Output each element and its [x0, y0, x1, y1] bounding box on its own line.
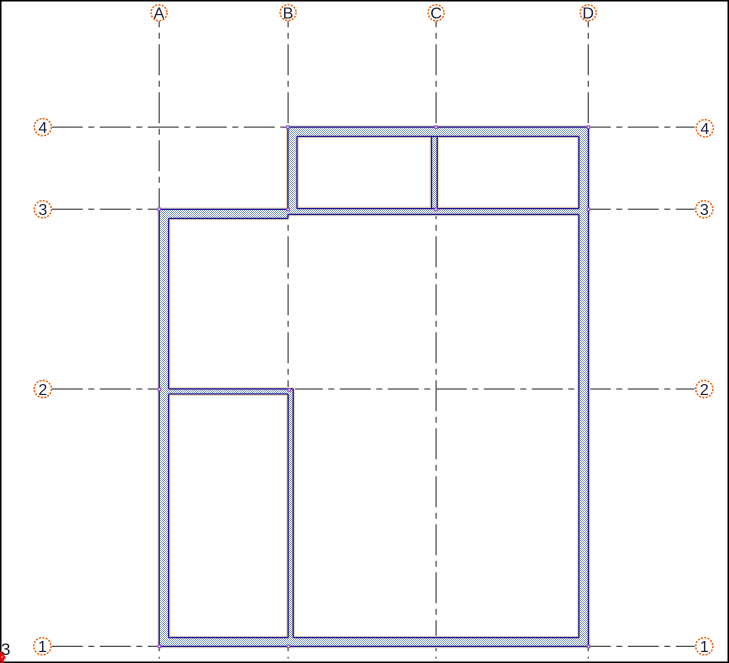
svg-text:A: A [154, 6, 165, 23]
svg-text:C: C [430, 6, 442, 23]
svg-text:3: 3 [38, 202, 47, 219]
svg-text:2: 2 [700, 382, 709, 399]
svg-text:1: 1 [38, 639, 47, 656]
svg-text:B: B [283, 5, 294, 22]
svg-text:1: 1 [700, 639, 709, 656]
svg-text:4: 4 [38, 120, 47, 137]
svg-text:D: D [582, 6, 594, 23]
svg-text:4: 4 [700, 121, 709, 138]
svg-text:2: 2 [38, 382, 47, 399]
svg-text:3: 3 [700, 202, 709, 219]
